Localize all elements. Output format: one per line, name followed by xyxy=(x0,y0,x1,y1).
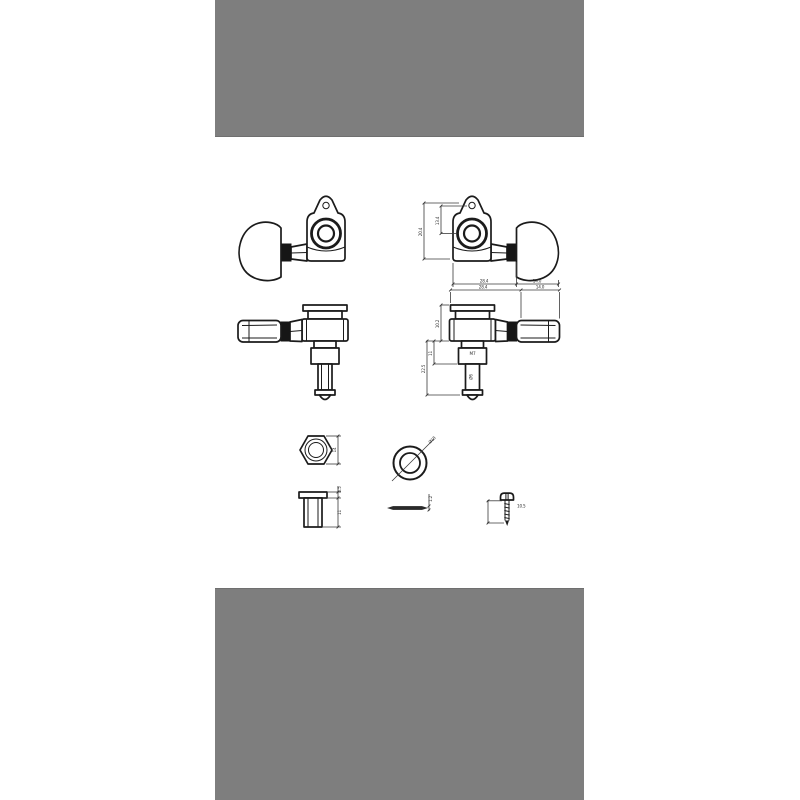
view-side-knob-right: 20.4 13.4 28.4 14.0 xyxy=(418,196,560,287)
view-front-knob-right: M7 Ø6 28.4 14.0 xyxy=(421,285,561,400)
view-front-knob-left xyxy=(238,305,348,400)
bushing-barrel xyxy=(304,498,322,527)
gear-housing xyxy=(450,319,496,341)
collar xyxy=(314,341,336,348)
knob-edge xyxy=(517,321,560,343)
dim-washer-thickness: 1.2 xyxy=(428,494,433,511)
screw-head xyxy=(501,493,514,500)
shaft-band xyxy=(508,322,517,341)
dim-label-bushing-length: 11 xyxy=(337,510,342,515)
dim-label-bushing-depth: 11 xyxy=(428,351,433,356)
knob-outline xyxy=(517,222,559,280)
capstan-neck xyxy=(456,311,490,319)
dim-label-hole-to-center: 13.4 xyxy=(435,216,440,225)
string-post-ring-outer xyxy=(312,219,341,248)
mount-post xyxy=(318,364,332,390)
capstan-flange xyxy=(451,305,495,311)
gear-housing xyxy=(302,319,348,341)
dim-label-washer-thickness: 1.2 xyxy=(428,495,433,502)
screw-tip xyxy=(505,521,509,527)
dim-label-knob-length: 14.0 xyxy=(533,279,542,284)
string-post-ring-outer xyxy=(458,219,487,248)
dim-label-cap-to-base: 10.2 xyxy=(435,319,440,328)
dim-label-washer-dia: Ø18 xyxy=(427,435,437,445)
view-bushing-side: 1.5 11 xyxy=(299,486,342,528)
dim-label-body-width: 28.4 xyxy=(479,285,488,290)
bushing-body xyxy=(311,348,339,364)
taper-midline xyxy=(291,253,307,254)
view-side-knob-left xyxy=(239,196,345,280)
view-nut-top: 14 xyxy=(300,435,341,466)
view-washer-top: Ø18 xyxy=(392,435,437,481)
dim-label-knob-length: 14.0 xyxy=(536,285,545,290)
thread-label: M7 xyxy=(470,351,476,356)
product-image: 20.4 13.4 28.4 14.0 xyxy=(0,0,800,800)
dim-left-verticals: 10.2 11 22.5 xyxy=(421,304,460,397)
shaft-band xyxy=(282,244,292,261)
screw-dome xyxy=(467,395,478,400)
screw-dome xyxy=(320,395,331,400)
dim-label-bushing-flange: 1.5 xyxy=(337,486,342,493)
washer-edge xyxy=(388,506,427,509)
capstan-neck xyxy=(308,311,342,319)
capstan-flange xyxy=(303,305,347,311)
knob-edge xyxy=(238,321,281,343)
dim-label-overall-height: 20.4 xyxy=(418,227,423,236)
view-washer-side: 1.2 xyxy=(388,494,433,511)
technical-drawing: 20.4 13.4 28.4 14.0 xyxy=(0,0,800,800)
taper-midline xyxy=(491,253,507,254)
post-dia-label: Ø6 xyxy=(469,374,474,380)
knob-outline xyxy=(239,222,281,280)
dim-label-screw-length: 10.5 xyxy=(517,504,526,509)
dim-label-body-width: 28.4 xyxy=(480,279,489,284)
collar xyxy=(462,341,484,348)
shaft-band xyxy=(281,322,290,341)
dim-label-nut-width: 14 xyxy=(332,447,337,452)
bushing-flange xyxy=(299,492,327,498)
view-screw-side: 10.5 xyxy=(487,493,526,526)
dim-label-overall-length: 22.5 xyxy=(421,364,426,373)
shaft-band xyxy=(507,244,517,261)
